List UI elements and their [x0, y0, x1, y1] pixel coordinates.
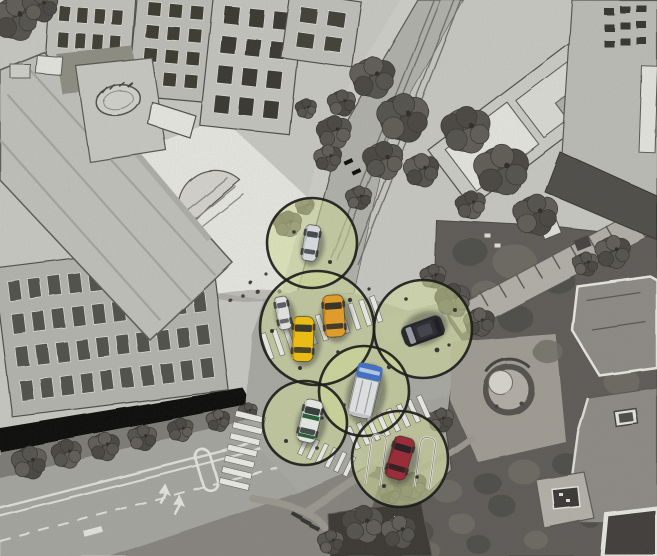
paper-grain-texture	[0, 0, 657, 556]
aerial-intersection-scene	[0, 0, 657, 556]
scene-canvas	[0, 0, 657, 556]
